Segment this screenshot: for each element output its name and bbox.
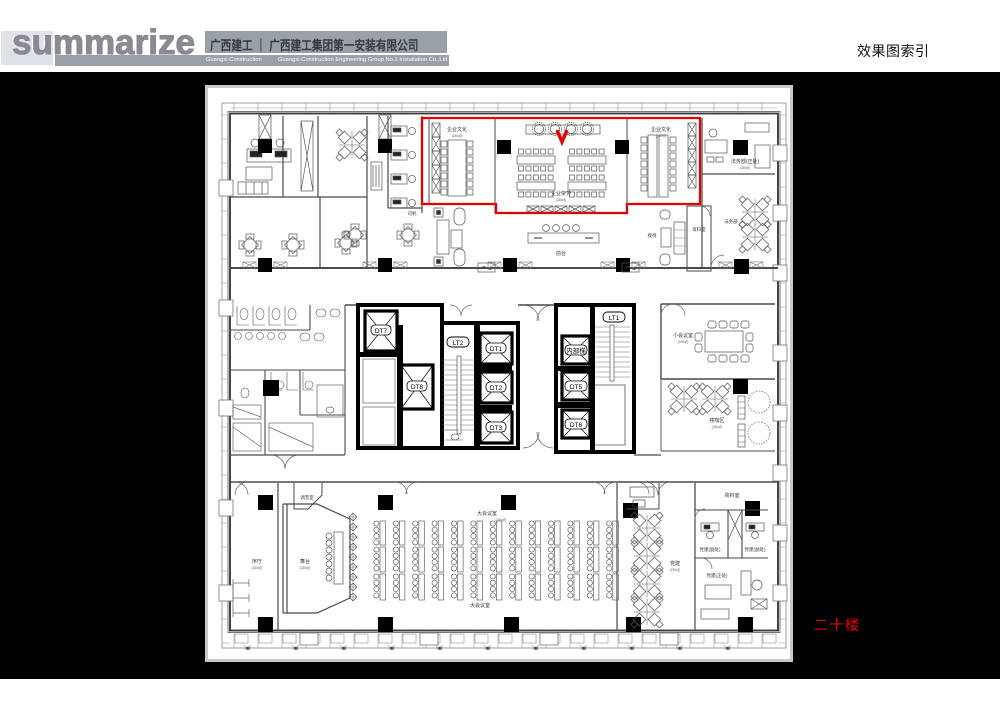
svg-text:法务部: 法务部 xyxy=(724,218,738,225)
svg-text:接待: 接待 xyxy=(648,232,657,239)
svg-text:资料室: 资料室 xyxy=(724,492,739,499)
svg-text:DT1: DT1 xyxy=(490,346,503,353)
svg-text:司机: 司机 xyxy=(408,210,417,217)
svg-text:党建(副处): 党建(副处) xyxy=(745,546,766,553)
svg-text:LT2: LT2 xyxy=(453,340,464,347)
svg-text:(230㎡): (230㎡) xyxy=(452,133,463,138)
svg-text:楼咖区: 楼咖区 xyxy=(709,417,724,424)
svg-text:(230㎡): (230㎡) xyxy=(252,565,263,570)
svg-text:(230㎡): (230㎡) xyxy=(712,424,723,429)
svg-text:(230㎡): (230㎡) xyxy=(670,567,681,572)
svg-text:DT6: DT6 xyxy=(570,422,583,429)
svg-text:DT5: DT5 xyxy=(570,384,583,391)
svg-text:企业架势: 企业架势 xyxy=(551,190,571,197)
svg-text:DT3: DT3 xyxy=(490,425,503,432)
svg-text:DT7: DT7 xyxy=(375,328,388,335)
svg-text:资料室: 资料室 xyxy=(692,226,706,233)
svg-text:大会议室: 大会议室 xyxy=(470,602,490,609)
svg-text:DT8: DT8 xyxy=(411,384,424,391)
svg-text:(230㎡): (230㎡) xyxy=(496,517,507,522)
svg-text:党建(正处): 党建(正处) xyxy=(707,572,728,579)
svg-text:(230㎡): (230㎡) xyxy=(740,165,751,170)
svg-text:LT1: LT1 xyxy=(609,315,620,322)
svg-text:舞台: 舞台 xyxy=(300,558,310,565)
svg-text:法务部(正处): 法务部(正处) xyxy=(731,158,760,165)
svg-text:企业文化: 企业文化 xyxy=(651,126,671,133)
svg-text:小会议室: 小会议室 xyxy=(673,332,693,339)
svg-text:前台: 前台 xyxy=(556,250,566,257)
svg-text:企业文化: 企业文化 xyxy=(447,126,467,133)
svg-text:(230㎡): (230㎡) xyxy=(678,339,689,344)
svg-text:内部梯: 内部梯 xyxy=(566,346,586,355)
svg-text:(230㎡): (230㎡) xyxy=(656,133,667,138)
svg-text:(230㎡): (230㎡) xyxy=(556,197,567,202)
svg-text:DT2: DT2 xyxy=(490,385,503,392)
svg-text:(230㎡): (230㎡) xyxy=(300,565,311,570)
svg-text:序厅: 序厅 xyxy=(252,558,262,565)
svg-text:调音室: 调音室 xyxy=(300,494,314,501)
svg-text:大会议室: 大会议室 xyxy=(477,510,497,517)
svg-text:党建: 党建 xyxy=(670,560,680,567)
svg-text:党建(副处): 党建(副处) xyxy=(700,546,721,553)
